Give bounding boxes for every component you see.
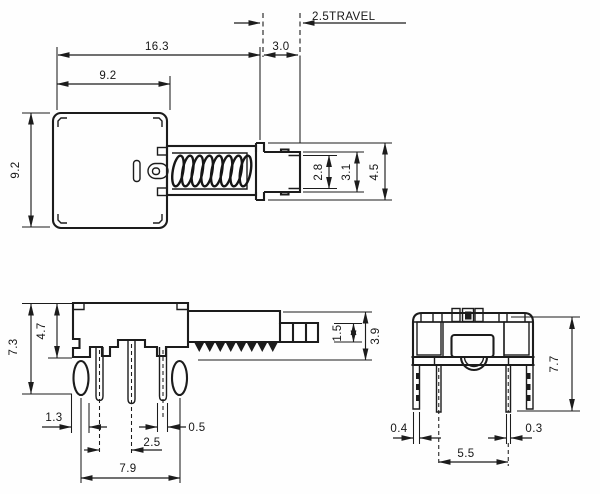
coil-spring <box>170 155 253 187</box>
dim-label-16-3: 16.3 <box>145 41 169 53</box>
top-view: 2.5TRAVEL 3.0 16.3 9.2 9.2 2.8 3.1 4.5 <box>10 11 406 228</box>
dim-label-9-2-height: 9.2 <box>10 161 22 178</box>
switch-body-top-view <box>53 113 167 228</box>
dim-label-3-1: 3.1 <box>341 163 353 180</box>
inner-block-left <box>417 322 441 355</box>
drawing-page: 2.5TRAVEL 3.0 16.3 9.2 9.2 2.8 3.1 4.5 <box>0 0 600 494</box>
side-view: 7.3 4.7 1.3 0.5 2.5 7.9 1.5 3.9 <box>8 303 382 483</box>
top-tabs <box>421 309 525 323</box>
leg-notch-marks <box>416 373 531 401</box>
switch-body-side-view <box>73 303 188 357</box>
housing-tab-top <box>158 148 168 156</box>
corner-marks <box>58 118 162 223</box>
dim-label-1-3: 1.3 <box>45 412 62 424</box>
dim-label-7-9: 7.9 <box>119 463 136 475</box>
dim-label-5-5: 5.5 <box>457 448 474 460</box>
spring-teeth <box>194 342 278 352</box>
dim-label-0-3: 0.3 <box>525 423 542 435</box>
dimension-lines-top <box>31 23 406 227</box>
dim-label-1-5: 1.5 <box>332 324 344 341</box>
mounting-post-right <box>172 361 187 395</box>
dim-label-0-4: 0.4 <box>390 423 407 435</box>
housing-tab-bottom <box>158 188 168 196</box>
dim-label-4-5: 4.5 <box>369 163 381 180</box>
dim-label-0-5: 0.5 <box>188 422 205 434</box>
dim-label-3-9: 3.9 <box>370 327 382 344</box>
front-view: 7.7 0.4 0.3 5.5 <box>390 309 580 467</box>
plunger-top-view <box>256 143 300 200</box>
top-slot-dark <box>465 312 472 320</box>
button-front <box>452 335 494 357</box>
side-slot <box>134 161 141 182</box>
dim-label-7-7: 7.7 <box>549 355 561 372</box>
mounting-legs <box>413 365 533 412</box>
latch-tab <box>148 164 168 179</box>
mounting-post-left <box>74 361 89 395</box>
dim-label-travel: 2.5TRAVEL <box>312 11 376 23</box>
latch-hole <box>153 168 160 175</box>
technical-drawing: 2.5TRAVEL 3.0 16.3 9.2 9.2 2.8 3.1 4.5 <box>0 0 600 494</box>
dim-label-7-3: 7.3 <box>8 338 20 355</box>
extension-lines-side <box>22 304 372 484</box>
extension-lines-top <box>22 47 392 227</box>
inner-block-right <box>504 322 529 355</box>
dim-label-9-2-width: 9.2 <box>99 70 116 82</box>
plunger-side-view <box>188 311 318 342</box>
dim-label-4-7: 4.7 <box>36 322 48 339</box>
dim-label-2-5: 2.5 <box>143 437 160 449</box>
dim-label-3-0: 3.0 <box>272 41 289 53</box>
dim-label-2-8: 2.8 <box>313 163 325 180</box>
